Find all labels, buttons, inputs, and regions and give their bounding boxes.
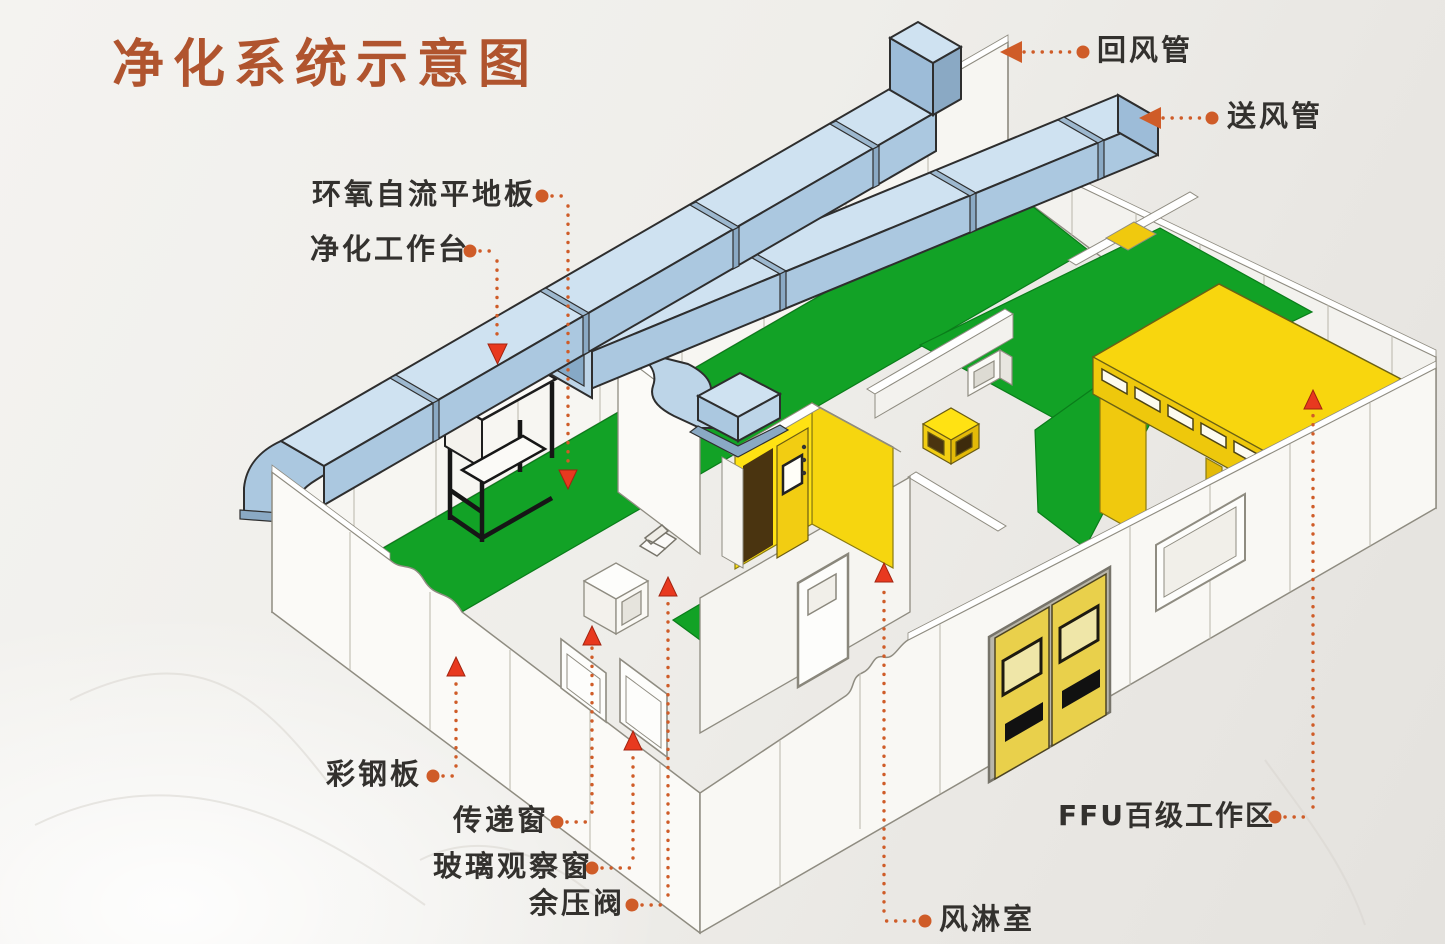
label-steel-panel: 彩钢板 [326, 758, 422, 791]
label-pressure-valve: 余压阀 [529, 887, 625, 920]
marker-pressure-valve [659, 577, 677, 596]
transfer-window-box [584, 563, 648, 634]
label-transfer-window: 传递窗 [453, 804, 549, 837]
marker-transfer-window [583, 626, 601, 645]
control-cabinet [923, 408, 979, 464]
diagram-title: 净化系统示意图 [112, 22, 539, 97]
label-ffu-area: FFU百级工作区 [1058, 800, 1275, 832]
cleanroom-diagram: 净化系统示意图 回风管 送风管 环氧自流平地板 净化工作台 彩钢板 传递窗 玻璃… [0, 0, 1445, 944]
label-air-shower: 风淋室 [939, 903, 1035, 936]
label-workbench: 净化工作台 [310, 233, 470, 266]
label-supply-duct: 送风管 [1227, 100, 1323, 133]
label-return-duct: 回风管 [1097, 34, 1193, 67]
air-shower-doorway [743, 448, 773, 563]
label-epoxy-floor: 环氧自流平地板 [312, 178, 536, 211]
label-glass-window: 玻璃观察窗 [433, 850, 593, 883]
